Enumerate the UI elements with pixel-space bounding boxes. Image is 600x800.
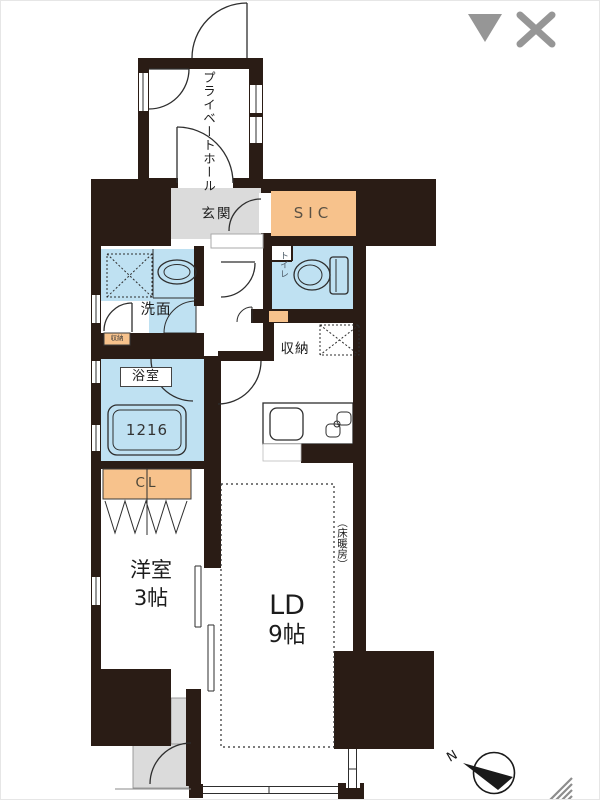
- resize-grip-icon[interactable]: [550, 778, 572, 800]
- living-dining-label: LD: [232, 591, 342, 621]
- western-room-label: 洋室: [98, 557, 204, 583]
- storage-door: [237, 307, 252, 322]
- floor-heating-label: （床暖房）: [331, 517, 348, 607]
- washroom-label: 洗面: [123, 301, 189, 319]
- washroom-cabinet-label: 収納: [104, 333, 130, 345]
- floorplan-drawing: [1, 1, 600, 800]
- wall-cabinet-box: [269, 311, 288, 322]
- western-room-size-label: 3帖: [98, 585, 204, 611]
- living-door: [218, 361, 261, 404]
- alcove-floor: [133, 744, 189, 788]
- sic-label: SIC: [271, 191, 356, 236]
- living-dining-size-label: 9帖: [232, 621, 342, 649]
- toilet-door: [221, 263, 255, 297]
- window-controls: [468, 14, 552, 44]
- floorplan-viewer: プライベートホール 玄関 SIC 洗面 収納 トイレ 収納 浴室 1216 CL…: [0, 0, 600, 800]
- stove-burners: [326, 412, 351, 437]
- storage-label: 収納: [269, 341, 321, 359]
- toilet-label: トイレ: [274, 251, 288, 307]
- collapse-triangle-icon[interactable]: [468, 14, 502, 42]
- balcony-window: [203, 784, 338, 797]
- entrance-step: [211, 234, 263, 248]
- closet-folding-door: [105, 501, 187, 533]
- entrance-label: 玄関: [171, 206, 263, 224]
- close-icon[interactable]: [520, 15, 552, 44]
- bathroom-label: 浴室: [120, 367, 172, 387]
- kitchen-end-panel: [263, 444, 301, 461]
- closet-label: CL: [103, 469, 191, 499]
- kitchen-sink: [270, 408, 303, 440]
- private-hall-label: プライベートホール: [181, 71, 215, 163]
- bathtub-size-label: 1216: [108, 422, 186, 440]
- building-entry-door: [192, 3, 247, 58]
- compass: [463, 753, 515, 794]
